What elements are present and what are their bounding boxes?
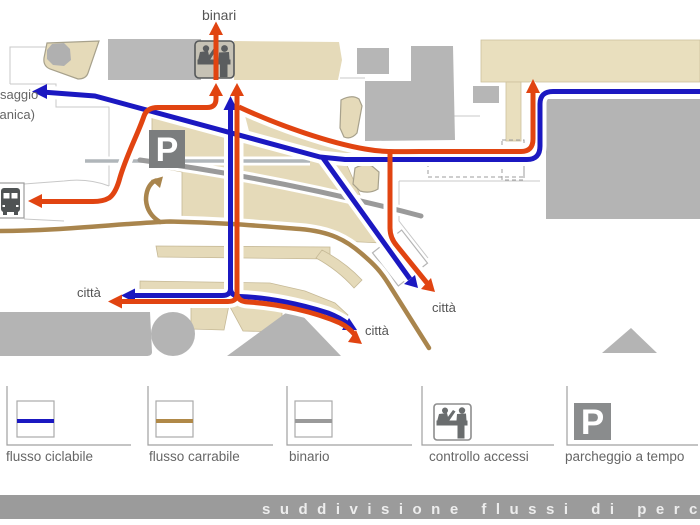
svg-text:flusso carrabile: flusso carrabile [149, 449, 240, 464]
svg-text:meccanica): meccanica) [0, 107, 35, 122]
svg-text:flusso ciclabile: flusso ciclabile [6, 449, 93, 464]
svg-text:città: città [365, 323, 390, 338]
svg-text:P: P [581, 403, 604, 442]
svg-text:controllo accessi: controllo accessi [429, 449, 529, 464]
svg-text:binari: binari [202, 7, 236, 23]
svg-text:città: città [77, 285, 102, 300]
svg-text:città: città [432, 300, 457, 315]
svg-text:parcheggio a tempo: parcheggio a tempo [565, 449, 684, 464]
svg-text:passaggio: passaggio [0, 87, 38, 102]
svg-text:P: P [156, 131, 179, 169]
svg-text:binario: binario [289, 449, 330, 464]
svg-text:suddivisione flussi di perc: suddivisione flussi di perc [262, 501, 700, 518]
